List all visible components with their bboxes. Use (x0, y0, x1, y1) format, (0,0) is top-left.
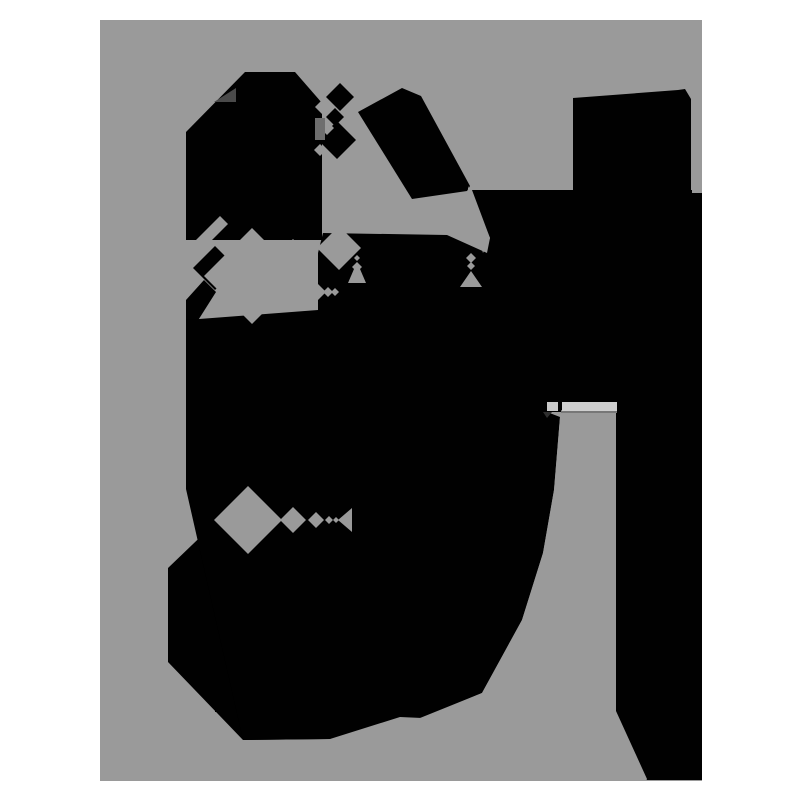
mid-square-accent (315, 118, 325, 140)
light-bar-main (562, 402, 617, 411)
page-background (0, 0, 800, 800)
tick-line (215, 710, 232, 712)
right-edge-strip (692, 115, 702, 193)
light-bar-stub (547, 402, 558, 411)
abstract-shape-scene (0, 0, 800, 800)
